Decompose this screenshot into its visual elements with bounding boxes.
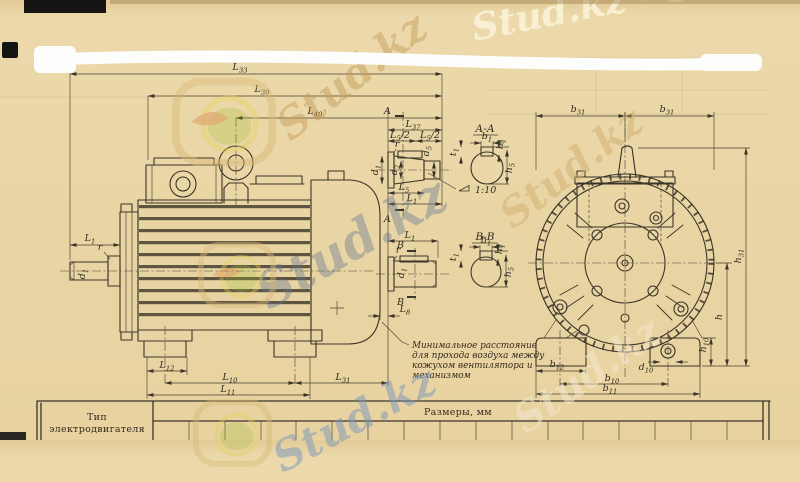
dim-r: r	[98, 242, 104, 253]
section-aa: А-А	[428, 123, 509, 191]
dim-d5: d5	[421, 146, 434, 156]
dim-d1: d1	[396, 268, 409, 278]
dim-h5: h5	[503, 267, 516, 277]
dim-t1: t1	[448, 253, 461, 261]
fan-cover	[311, 171, 380, 344]
dim-b31: b31	[660, 104, 675, 117]
dim-h31: h31	[733, 249, 746, 264]
technical-drawing: А-А В-В	[0, 0, 800, 440]
taper-note: 1:10	[475, 185, 496, 196]
dim-L33: L33	[232, 62, 248, 75]
section-marker-B: В	[396, 297, 404, 308]
motor-frame	[138, 200, 311, 330]
spec-table: Тип электродвигателя Размеры, мм	[37, 401, 770, 440]
dim-L31: L31	[335, 372, 351, 385]
dim-L5-half: L5/2	[419, 130, 440, 143]
annotation-line: кожухом вентилятора и	[412, 361, 533, 371]
dim-d1: d1	[77, 269, 90, 279]
section-marker-A: А	[383, 106, 391, 117]
dim-L40: L40	[307, 106, 324, 119]
end-bell	[120, 204, 138, 340]
dim-L30: L30	[254, 84, 271, 97]
dim-b12: b12	[550, 359, 565, 372]
dim-L5-half: L5/2	[389, 130, 410, 143]
dim-d1: d1	[370, 165, 383, 175]
dim-L1: L1	[84, 233, 96, 246]
cooling-fins	[139, 205, 310, 316]
dim-L11: L11	[220, 384, 236, 397]
table-type-header: Тип	[87, 412, 107, 423]
annotation-note: Минимальное расстояние для прохода возду…	[382, 322, 545, 381]
dim-L1: L1	[406, 193, 418, 206]
section-marker-A: А	[383, 214, 391, 225]
dim-t1: t1	[448, 148, 461, 156]
dim-b31: b31	[571, 104, 586, 117]
motor-side-view	[60, 146, 380, 386]
table-type-header: электродвигателя	[49, 424, 145, 435]
section-marker-B: В	[396, 240, 404, 251]
dim-h1: h1	[494, 244, 507, 254]
dim-d10: d10	[639, 362, 654, 375]
table-sizes-header: Размеры, мм	[424, 407, 492, 418]
dim-h: h	[714, 314, 725, 320]
dim-L10: L10	[222, 372, 239, 385]
motor-front-view	[528, 112, 722, 388]
dim-h1: h1	[495, 139, 508, 149]
dim-L1: L1	[404, 230, 416, 243]
dim-h5: h5	[504, 163, 517, 173]
terminal-box	[146, 158, 222, 203]
scanned-document-page: { "page": {"background": "#e9d5a4", "ink…	[0, 0, 800, 440]
front-view-dimensions	[536, 112, 750, 398]
front-lifting-lug	[618, 146, 636, 177]
dim-L12: L12	[159, 360, 175, 373]
annotation-line: механизмом	[412, 371, 471, 381]
annotation-line: Минимальное расстояние	[411, 341, 537, 351]
dim-d2: d2	[389, 165, 402, 175]
shaft-detail-cylindrical	[376, 248, 450, 300]
annotation-line: для прохода воздуха между	[412, 351, 545, 361]
